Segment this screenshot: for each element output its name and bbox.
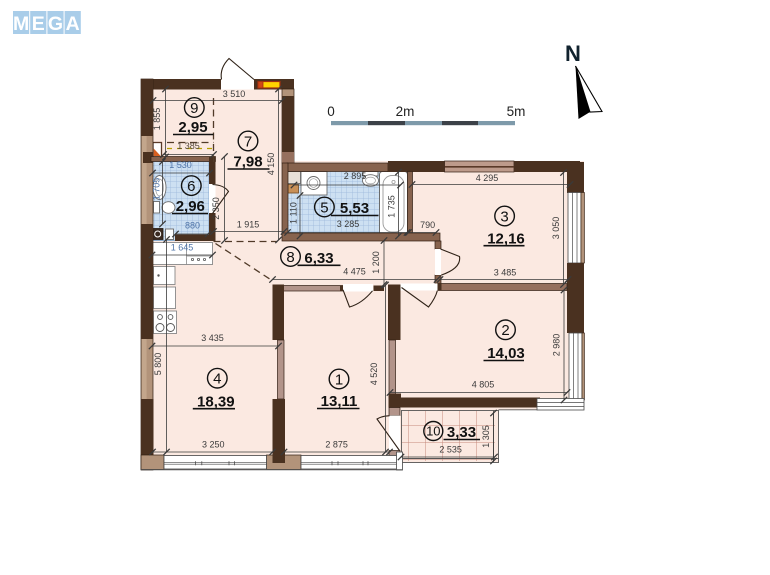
svg-text:1 110: 1 110: [288, 202, 298, 224]
svg-text:8: 8: [286, 249, 294, 266]
svg-text:M: M: [13, 13, 29, 35]
svg-text:G: G: [48, 13, 63, 35]
svg-text:2 895: 2 895: [344, 171, 367, 181]
svg-text:1 200: 1 200: [371, 251, 381, 274]
svg-text:3 285: 3 285: [337, 219, 360, 229]
svg-text:1 705: 1 705: [152, 178, 162, 201]
svg-text:1 855: 1 855: [152, 108, 162, 131]
svg-text:2m: 2m: [396, 104, 415, 119]
svg-text:5m: 5m: [507, 104, 526, 119]
svg-text:1 645: 1 645: [171, 243, 194, 253]
svg-text:5: 5: [320, 199, 328, 216]
svg-text:1 385: 1 385: [177, 141, 200, 151]
svg-text:5 800: 5 800: [153, 353, 163, 376]
svg-text:3: 3: [500, 208, 508, 225]
svg-text:2 875: 2 875: [325, 440, 348, 450]
svg-text:2,95: 2,95: [178, 119, 207, 136]
svg-text:2 980: 2 980: [551, 334, 561, 357]
svg-text:880: 880: [185, 221, 200, 231]
svg-text:1 915: 1 915: [237, 220, 260, 230]
svg-text:4: 4: [213, 371, 221, 388]
svg-text:3 435: 3 435: [201, 333, 224, 343]
svg-text:6: 6: [187, 178, 195, 195]
svg-text:3 250: 3 250: [202, 440, 225, 450]
svg-text:4 295: 4 295: [476, 173, 499, 183]
svg-text:2: 2: [501, 322, 509, 339]
svg-text:1 530: 1 530: [169, 160, 192, 170]
svg-text:N: N: [565, 41, 581, 66]
svg-text:0: 0: [327, 104, 335, 119]
svg-text:790: 790: [420, 220, 435, 230]
svg-text:4 475: 4 475: [343, 267, 366, 277]
svg-text:E: E: [32, 13, 45, 35]
svg-text:3 510: 3 510: [223, 89, 246, 99]
svg-text:2 535: 2 535: [439, 445, 462, 455]
svg-text:6,33: 6,33: [304, 250, 333, 267]
svg-text:2,96: 2,96: [176, 198, 205, 215]
svg-text:13,11: 13,11: [321, 393, 358, 410]
svg-text:3 485: 3 485: [494, 268, 517, 278]
svg-text:4 150: 4 150: [266, 153, 276, 176]
svg-text:10: 10: [426, 424, 440, 439]
svg-text:3 050: 3 050: [551, 217, 561, 240]
svg-text:3,33: 3,33: [447, 424, 476, 441]
svg-text:9: 9: [190, 100, 198, 117]
svg-text:7,98: 7,98: [233, 154, 262, 171]
svg-text:4 805: 4 805: [472, 380, 495, 390]
svg-text:1: 1: [335, 371, 343, 388]
svg-text:5,53: 5,53: [340, 200, 369, 217]
svg-text:2 350: 2 350: [211, 197, 221, 220]
svg-text:18,39: 18,39: [197, 393, 235, 410]
svg-text:14,03: 14,03: [487, 345, 525, 362]
svg-text:1 305: 1 305: [481, 425, 491, 448]
svg-text:1 735: 1 735: [387, 195, 397, 218]
svg-text:4 520: 4 520: [369, 363, 379, 386]
svg-text:7: 7: [244, 133, 252, 150]
svg-text:A: A: [66, 13, 80, 35]
